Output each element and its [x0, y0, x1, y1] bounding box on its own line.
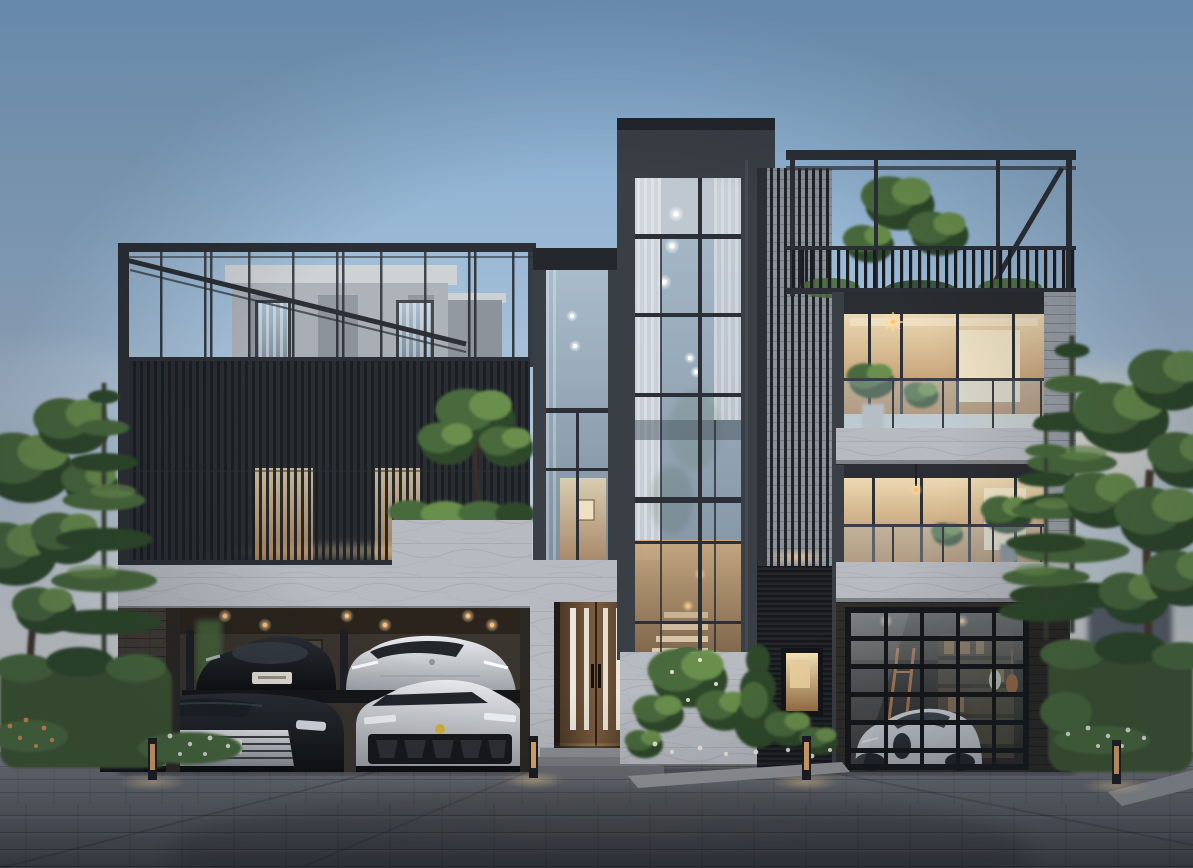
- vignette: [0, 0, 1193, 868]
- architectural-rendering: [0, 0, 1193, 868]
